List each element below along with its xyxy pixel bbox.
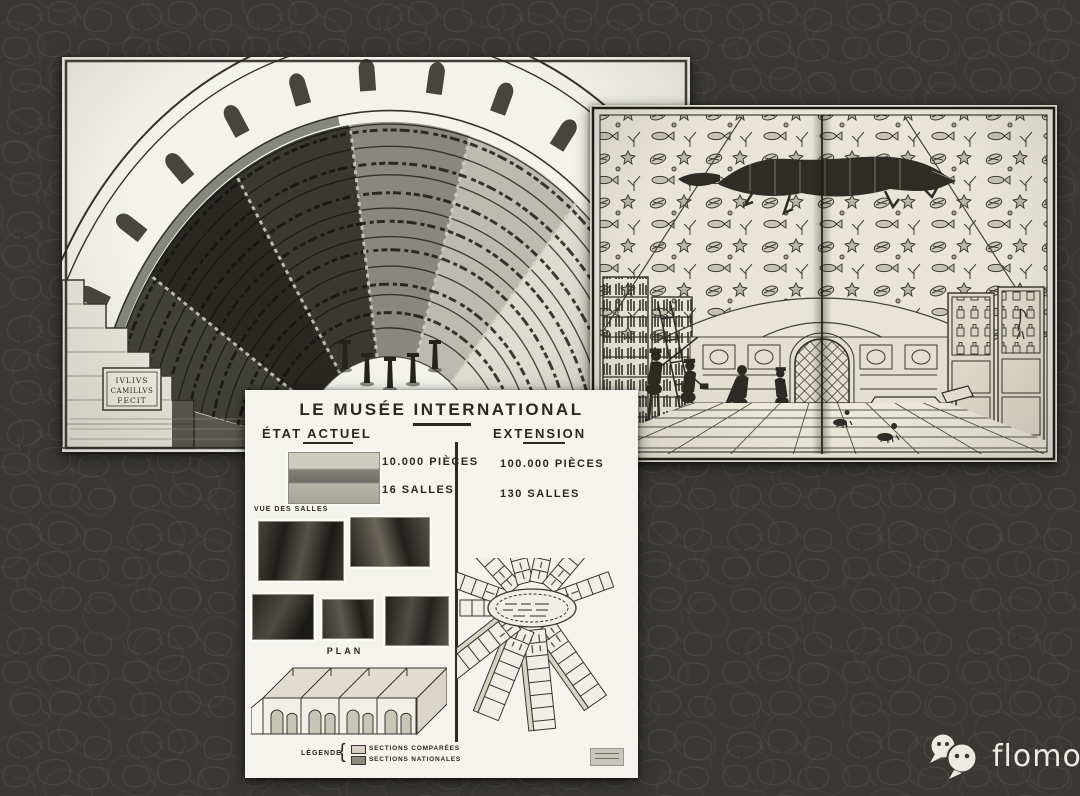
slide-canvas: IVLIVS CAMILLVS FECIT	[0, 0, 1080, 796]
plan-axonometric-drawing	[251, 656, 447, 742]
vue-des-salles-label: VUE DES SALLES	[254, 506, 328, 513]
palais-mondial-photo-thumbnail	[288, 452, 380, 504]
etat-salles-stat: 16 SALLES	[382, 484, 454, 496]
etat-actuel-heading: ÉTAT ACTUEL	[262, 426, 372, 441]
poster-title: LE MUSÉE INTERNATIONAL	[245, 400, 638, 420]
legend-label: LÉGENDE	[301, 750, 342, 757]
extension-salles-stat: 130 SALLES	[500, 488, 580, 500]
flomo-label: flomo	[992, 739, 1080, 774]
collection-stamp	[590, 748, 624, 766]
salle-photo-4	[322, 599, 374, 639]
plaque-line-1: IVLIVS	[116, 376, 149, 385]
legend-item-nationales: SECTIONS NATIONALES	[369, 756, 461, 763]
legend-swatch-nationales	[351, 756, 366, 765]
salle-photo-3	[252, 594, 314, 640]
theatre-plaque: IVLIVS CAMILLVS FECIT	[103, 368, 161, 410]
extension-pieces-stat: 100.000 PIÈCES	[500, 458, 604, 470]
extension-star-diagram	[457, 558, 637, 746]
legend-bracket: {	[339, 741, 346, 764]
plaque-line-2: CAMILLVS	[111, 387, 154, 395]
salle-photo-5	[385, 596, 449, 646]
plaque-line-3: FECIT	[117, 396, 146, 405]
cabinet-of-curiosities-photo	[590, 105, 1057, 462]
legend-item-comparees: SECTIONS COMPARÉES	[369, 745, 460, 752]
extension-underline	[523, 442, 565, 444]
legend-swatch-comparees	[351, 745, 366, 754]
plan-label: PLAN	[245, 646, 445, 656]
cabinet-engraving	[590, 105, 1057, 462]
etat-actuel-underline	[303, 442, 353, 444]
musee-international-poster: LE MUSÉE INTERNATIONAL ÉTAT ACTUEL 10.00…	[245, 390, 638, 778]
title-underline	[413, 423, 471, 426]
salle-photo-2	[350, 517, 430, 567]
extension-heading: EXTENSION	[493, 426, 586, 441]
wechat-chat-bubbles-icon	[925, 731, 983, 781]
etat-pieces-stat: 10.000 PIÈCES	[382, 456, 479, 468]
flomo-watermark: flomo	[925, 731, 1080, 781]
salle-photo-1	[258, 521, 344, 581]
